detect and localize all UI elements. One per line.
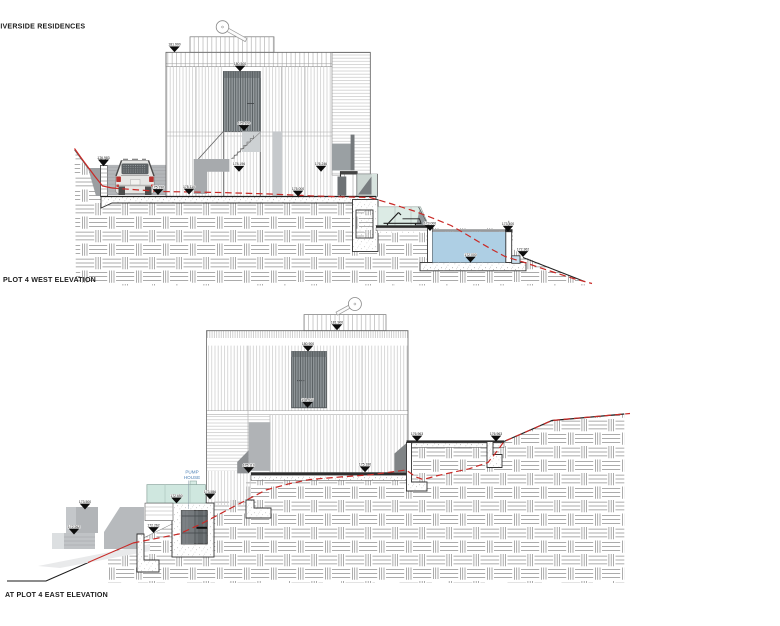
svg-text:181.900: 181.900 — [168, 43, 180, 47]
svg-text:172.262: 172.262 — [68, 525, 80, 529]
svg-text:172.262: 172.262 — [147, 523, 159, 527]
svg-text:181.900: 181.900 — [331, 321, 343, 325]
svg-text:179.100: 179.100 — [238, 121, 250, 125]
svg-text:178.196: 178.196 — [233, 162, 245, 166]
svg-text:175.110: 175.110 — [183, 185, 195, 189]
svg-text:172.650: 172.650 — [170, 494, 182, 498]
svg-text:PUMP: PUMP — [185, 470, 198, 475]
svg-text:173.400: 173.400 — [502, 222, 514, 226]
svg-text:176.983: 176.983 — [97, 156, 109, 160]
svg-text:175.180: 175.180 — [359, 463, 371, 467]
svg-text:176.246: 176.246 — [315, 162, 327, 166]
svg-text:PLOT 4 WEST ELEVATION: PLOT 4 WEST ELEVATION — [3, 276, 96, 284]
svg-text:175.000: 175.000 — [292, 187, 304, 191]
svg-text:176.963: 176.963 — [411, 432, 423, 436]
svg-text:175.110: 175.110 — [243, 463, 255, 467]
svg-text:173.556: 173.556 — [204, 490, 216, 494]
svg-text:AT PLOT 4 EAST ELEVATION: AT PLOT 4 EAST ELEVATION — [5, 591, 108, 599]
svg-text:173.000: 173.000 — [424, 221, 436, 225]
svg-text:180.500: 180.500 — [234, 62, 246, 66]
svg-text:180.900: 180.900 — [302, 342, 314, 346]
svg-text:172.000: 172.000 — [464, 253, 476, 257]
svg-text:176.963: 176.963 — [490, 432, 502, 436]
svg-text:173.500: 173.500 — [79, 500, 91, 504]
svg-text:175.190: 175.190 — [152, 185, 164, 189]
svg-text:178.937: 178.937 — [301, 398, 313, 402]
svg-text:RIVERSIDE RESIDENCES: RIVERSIDE RESIDENCES — [0, 23, 85, 31]
svg-text:172.362: 172.362 — [517, 247, 529, 251]
svg-text:HOUSE: HOUSE — [184, 475, 200, 480]
